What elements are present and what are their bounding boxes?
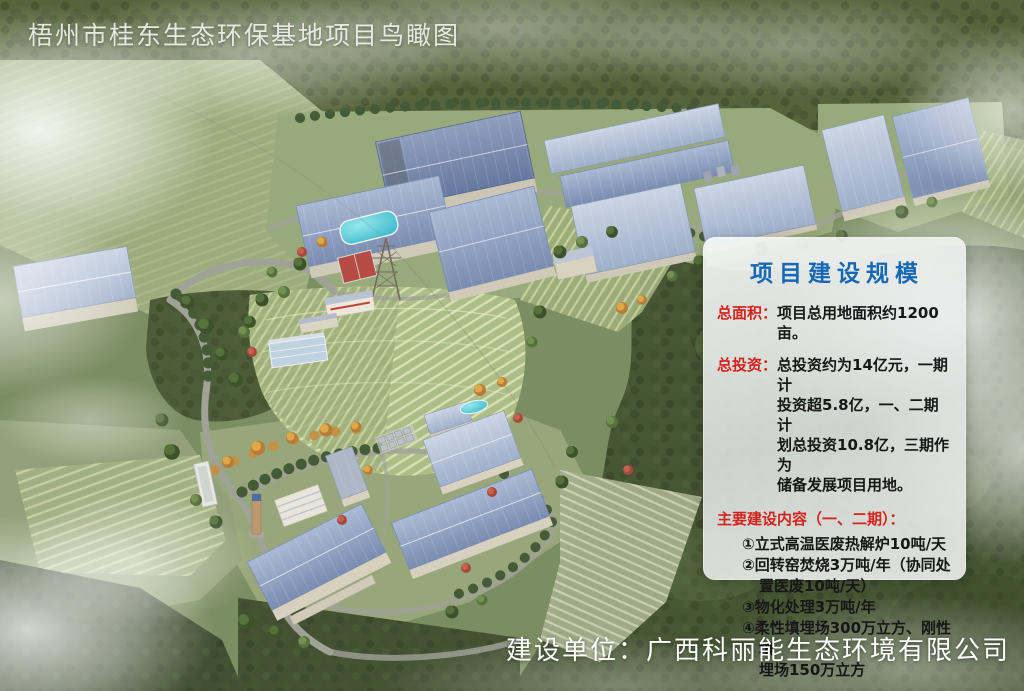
construction-item-1: ①立式高温医废热解炉10吨/天 (742, 534, 953, 555)
panel-title: 项目建设规模 (721, 254, 953, 288)
total-area-row: 总面积： 项目总用地面积约1200亩。 (717, 303, 953, 343)
total-investment-label: 总投资： (717, 355, 777, 495)
page-title: 梧州市桂东生态环保基地项目鸟瞰图 (28, 16, 460, 52)
total-area-label: 总面积： (717, 303, 777, 343)
total-investment-value: 总投资约为14亿元，一期计 投资超5.8亿，一、二期计 划总投资10.8亿，三期… (777, 355, 953, 495)
construction-item-3: ③物化处理3万吨/年 (742, 597, 953, 618)
construction-unit-caption: 建设单位：广西科丽能生态环境有限公司 (506, 630, 1010, 667)
total-investment-row: 总投资： 总投资约为14亿元，一期计 投资超5.8亿，一、二期计 划总投资10.… (717, 355, 953, 495)
construction-unit-company: 广西科丽能生态环境有限公司 (646, 636, 1010, 666)
construction-item-2: ②回转窑焚烧3万吨/年（协同处 置医废10吨/天） (742, 555, 953, 597)
aerial-rendering-page: 梧州市桂东生态环保基地项目鸟瞰图 项目建设规模 总面积： 项目总用地面积约120… (0, 0, 1024, 691)
main-content-heading: 主要建设内容（一、二期）： (717, 509, 953, 529)
project-scale-panel: 项目建设规模 总面积： 项目总用地面积约1200亩。 总投资： 总投资约为14亿… (703, 237, 966, 580)
construction-unit-label: 建设单位： (506, 636, 646, 666)
total-area-value: 项目总用地面积约1200亩。 (777, 303, 953, 343)
